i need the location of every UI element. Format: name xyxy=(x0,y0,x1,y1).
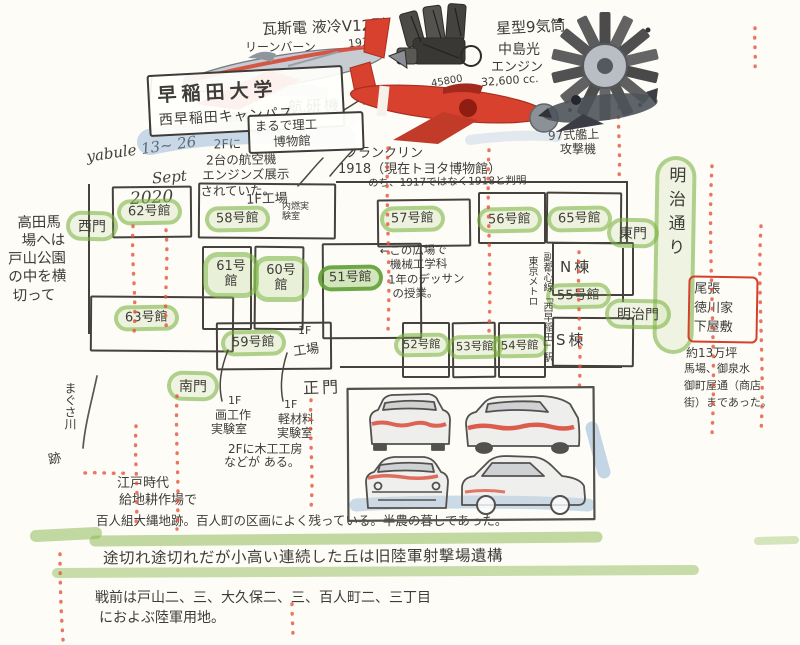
banner-note: まるで理工 博物館 xyxy=(247,111,364,154)
car-front-view xyxy=(366,457,448,508)
car-rear-quarter-view xyxy=(466,396,579,453)
south-gate-road-curve xyxy=(220,350,228,401)
green-marker-strokes xyxy=(36,533,795,573)
car-side-view xyxy=(462,456,585,514)
river-trace-line xyxy=(83,376,97,448)
hand-drawn-campus-map: 早稲田大学 西早稲田キャンパス まるで理工 博物館 yabule 13~ 26 … xyxy=(0,0,800,645)
car-rear-view xyxy=(370,394,450,450)
main-gate-road-curve xyxy=(281,353,287,401)
cars-sketch xyxy=(348,387,595,521)
v12-engine-drawing xyxy=(389,3,481,68)
illustration-layer xyxy=(0,0,800,645)
